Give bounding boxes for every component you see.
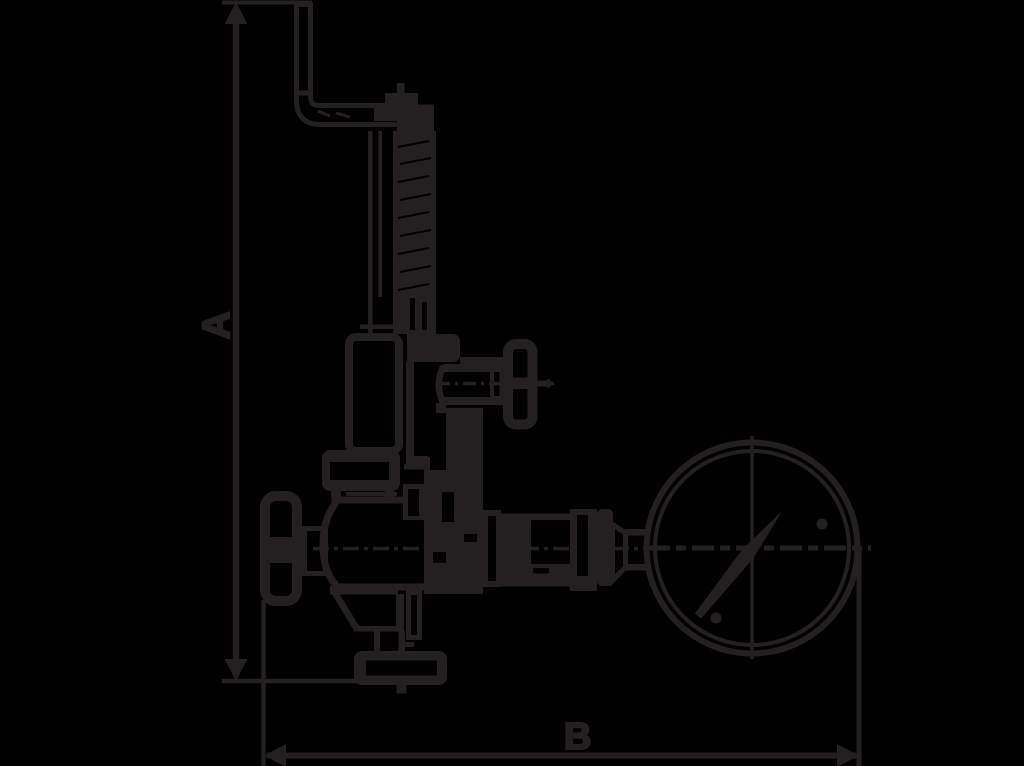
svg-text:B: B	[564, 716, 591, 758]
svg-text:A: A	[196, 312, 238, 339]
